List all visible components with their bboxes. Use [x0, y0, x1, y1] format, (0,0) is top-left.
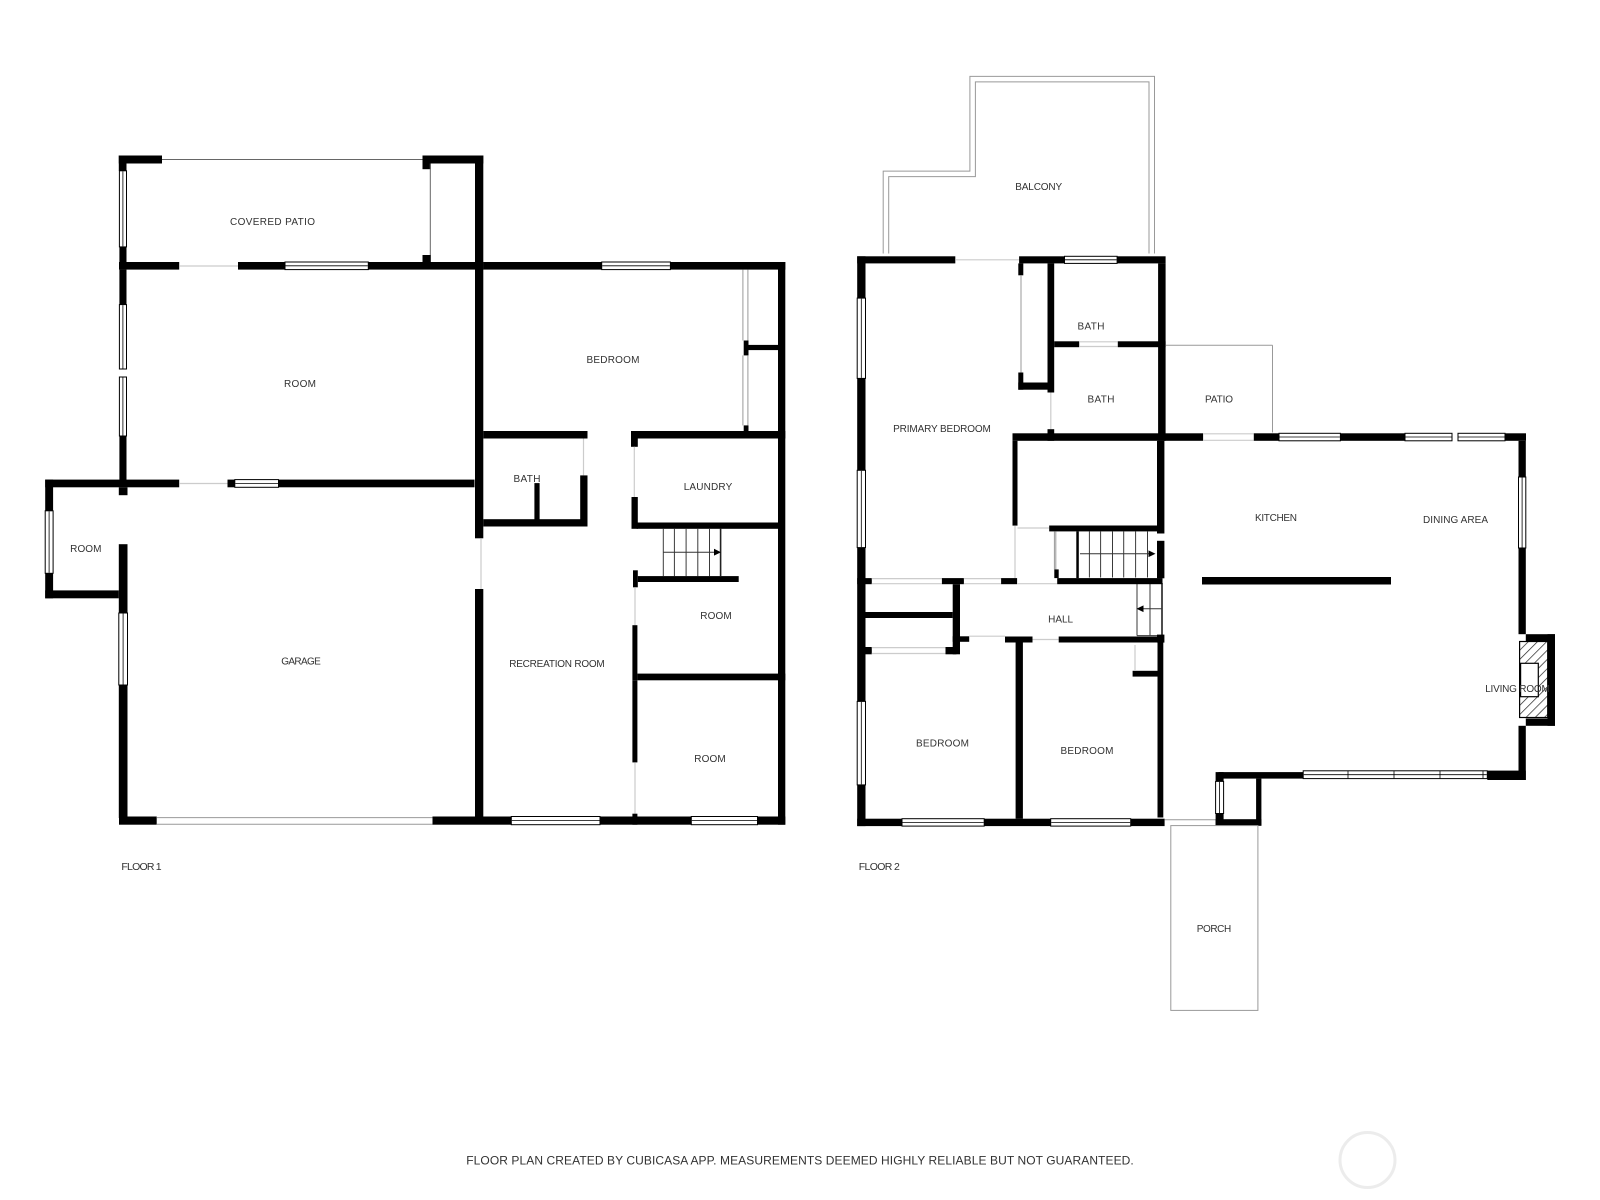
svg-text:ROOM: ROOM [700, 611, 732, 622]
svg-text:BATH: BATH [1088, 395, 1115, 406]
svg-text:PATIO: PATIO [1205, 395, 1233, 406]
svg-text:DINING AREA: DINING AREA [1423, 515, 1488, 526]
svg-text:FLOOR 2: FLOOR 2 [859, 861, 900, 873]
svg-text:HALL: HALL [1048, 614, 1073, 625]
svg-text:BEDROOM: BEDROOM [587, 355, 640, 366]
svg-text:PORCH: PORCH [1197, 924, 1231, 935]
svg-text:FLOOR PLAN CREATED BY CUBICASA: FLOOR PLAN CREATED BY CUBICASA APP. MEAS… [466, 1154, 1134, 1168]
svg-text:ROOM: ROOM [284, 379, 316, 390]
svg-text:BEDROOM: BEDROOM [1061, 746, 1114, 757]
svg-text:BATH: BATH [1078, 322, 1105, 333]
svg-text:RECREATION ROOM: RECREATION ROOM [509, 659, 605, 670]
svg-text:COVERED PATIO: COVERED PATIO [230, 217, 315, 228]
svg-text:LAUNDRY: LAUNDRY [684, 482, 733, 493]
svg-text:GARAGE: GARAGE [281, 657, 321, 668]
svg-text:BATH: BATH [514, 474, 541, 485]
svg-text:BEDROOM: BEDROOM [916, 739, 969, 750]
svg-text:ROOM: ROOM [70, 544, 101, 555]
svg-text:KITCHEN: KITCHEN [1255, 513, 1297, 524]
svg-text:BALCONY: BALCONY [1015, 182, 1062, 193]
svg-text:FLOOR 1: FLOOR 1 [121, 861, 161, 873]
svg-text:PRIMARY BEDROOM: PRIMARY BEDROOM [893, 424, 991, 435]
svg-text:LIVING ROOM: LIVING ROOM [1485, 684, 1550, 695]
svg-text:ROOM: ROOM [694, 754, 726, 765]
